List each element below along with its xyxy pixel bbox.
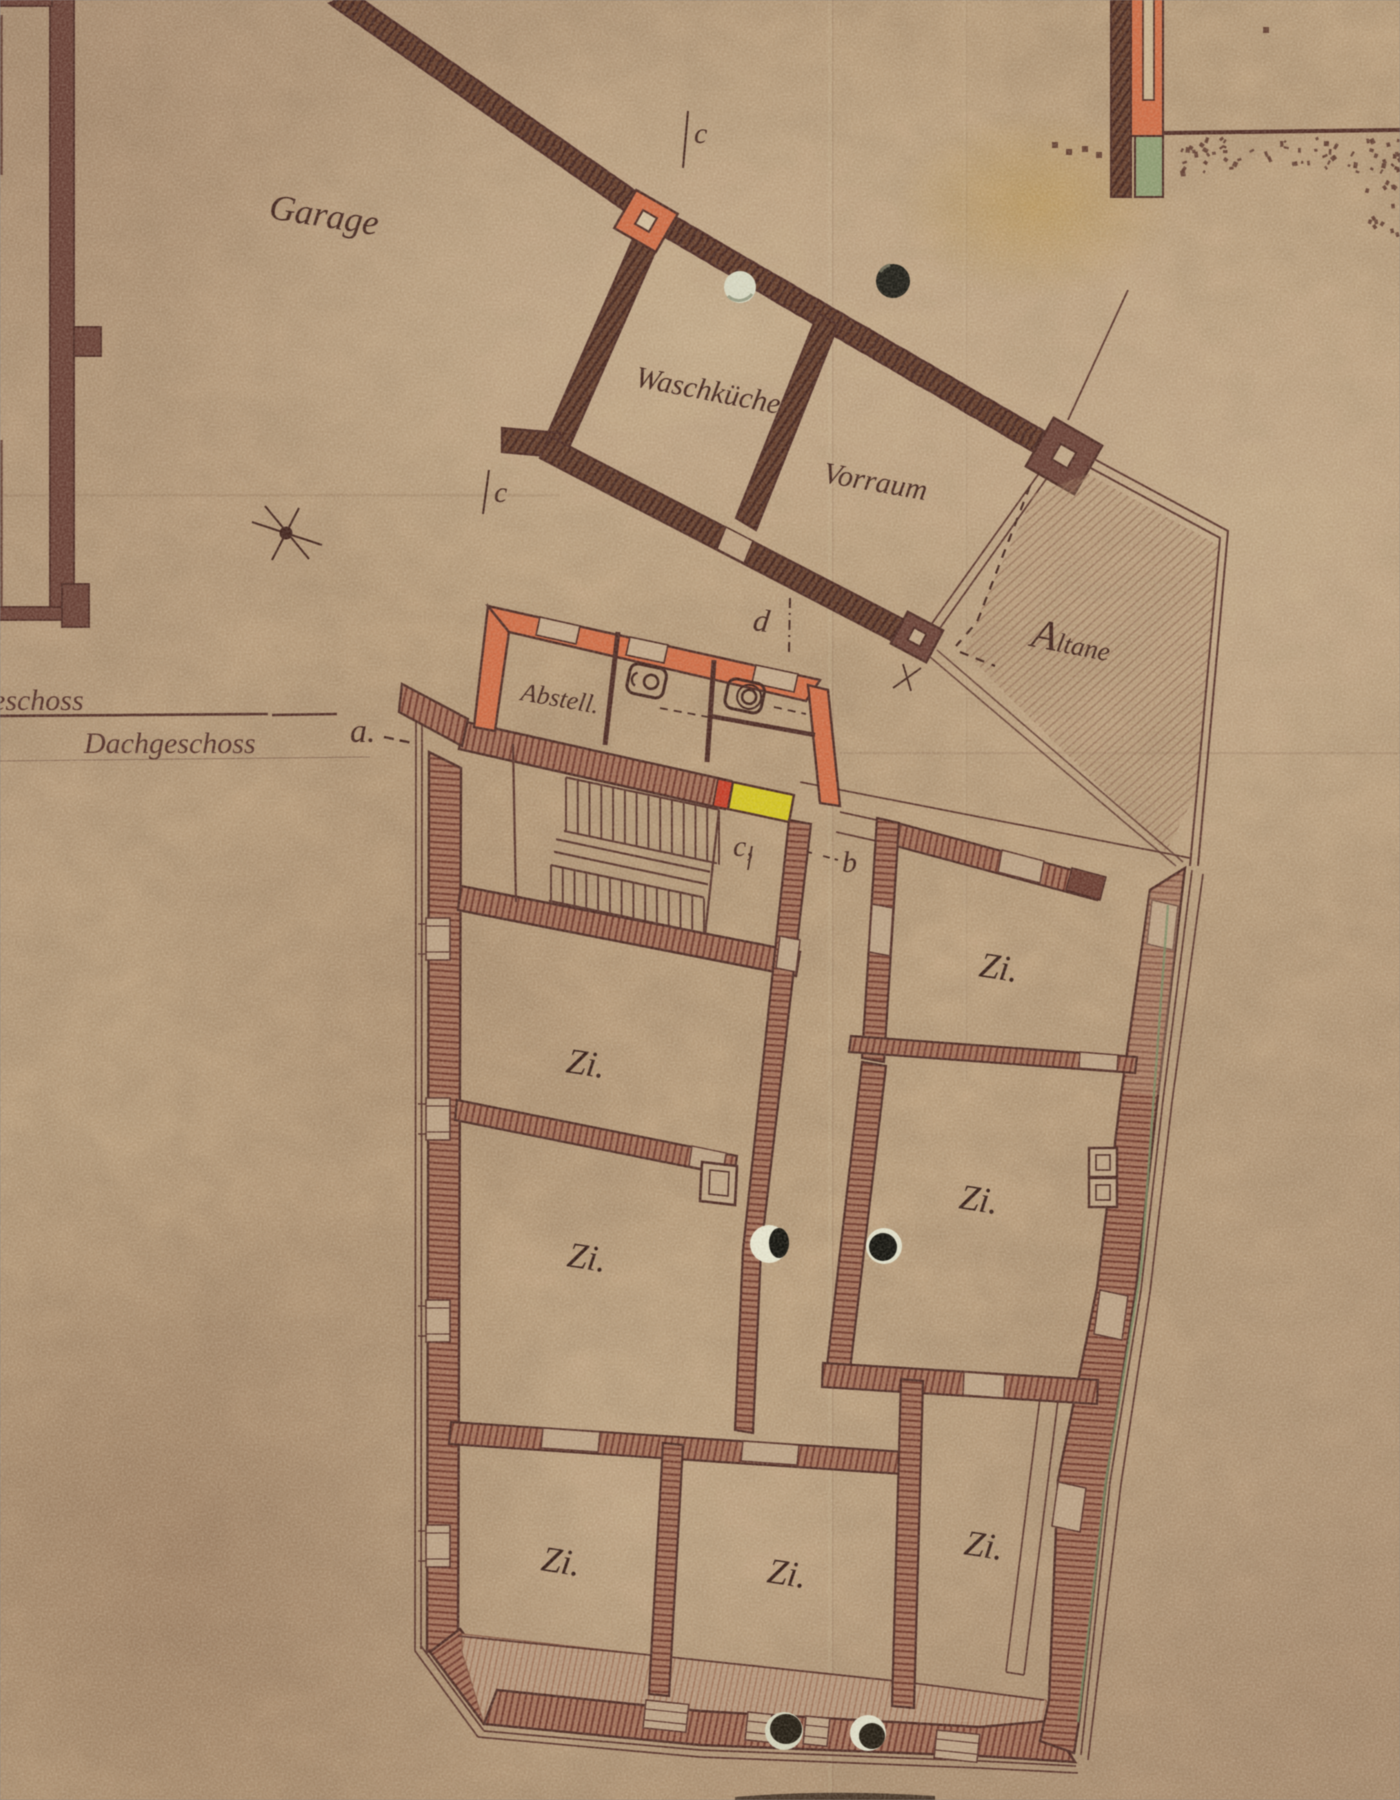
svg-text:Zi.: Zi.: [957, 1176, 1002, 1222]
svg-text:Zi.: Zi.: [977, 944, 1022, 990]
svg-text:eschoss: eschoss: [0, 684, 84, 717]
svg-text:Zi.: Zi.: [565, 1234, 610, 1280]
svg-text:Zi.: Zi.: [539, 1538, 584, 1584]
svg-text:c: c: [494, 476, 507, 509]
svg-text:Zi.: Zi.: [564, 1040, 609, 1086]
svg-text:Dachgeschoss: Dachgeschoss: [83, 727, 256, 760]
svg-text:Zi.: Zi.: [765, 1550, 810, 1596]
svg-text:Zi.: Zi.: [962, 1522, 1007, 1568]
svg-text:a.: a.: [350, 713, 376, 750]
svg-text:c: c: [694, 117, 707, 150]
svg-text:b: b: [842, 846, 857, 879]
